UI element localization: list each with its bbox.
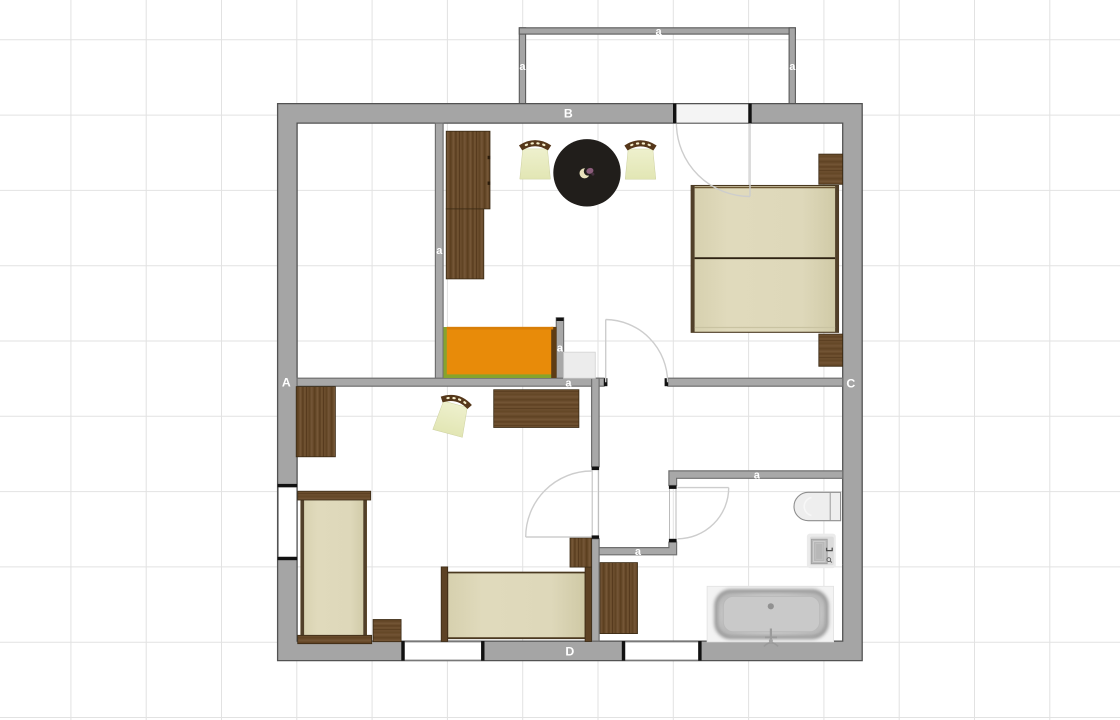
svg-text:a: a	[656, 26, 663, 38]
svg-text:D: D	[565, 645, 574, 659]
svg-text:a: a	[789, 61, 796, 73]
svg-text:a: a	[557, 343, 564, 355]
svg-text:a: a	[754, 470, 761, 482]
svg-text:a: a	[836, 556, 843, 568]
svg-text:a: a	[436, 245, 443, 257]
svg-text:a: a	[519, 61, 526, 73]
svg-text:a: a	[565, 377, 572, 389]
svg-text:a: a	[635, 546, 642, 558]
svg-text:B: B	[564, 107, 573, 121]
svg-text:A: A	[282, 376, 291, 390]
svg-text:C: C	[846, 376, 855, 390]
